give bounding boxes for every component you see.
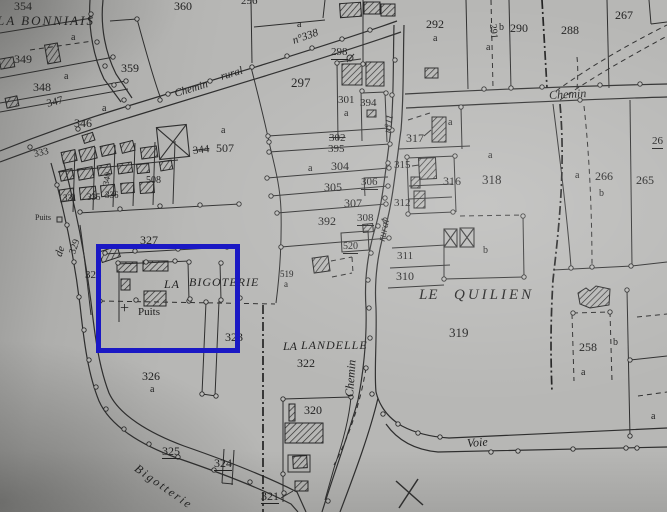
parcel-number: 331 [63, 194, 77, 203]
parcel-number: 322 [297, 357, 315, 369]
parcel-number: 307 [344, 197, 362, 209]
parcel-number: 508 [146, 176, 161, 186]
parcel-number: 288 [561, 24, 579, 36]
subparcel-letter: a [651, 412, 655, 422]
parcel-number: 354 [14, 0, 32, 12]
parcel-number: 347 [46, 95, 65, 110]
subparcel-letter: a [448, 118, 452, 128]
parcel-number: 296 [241, 0, 258, 7]
subparcel-letter: a [64, 72, 68, 82]
parcel-number: 392 [318, 215, 336, 227]
parcel-number: 305 [324, 181, 342, 193]
parcel-number: 290 [510, 22, 528, 34]
parcel-number: 507 [216, 142, 234, 154]
parcel-number: 348 [33, 81, 51, 93]
subparcel-letter: b [599, 189, 604, 199]
road-name: de [54, 245, 68, 258]
parcel-number: 26 [652, 136, 663, 149]
subparcel-letter: a [344, 109, 348, 119]
parcel-number: 301 [338, 95, 355, 106]
parcel-number: 316 [443, 175, 461, 187]
place-name: LA [283, 340, 297, 352]
parcel-number: 333 [33, 147, 50, 160]
road-name: Chemin [343, 359, 358, 397]
road-name: Bigotterie [133, 462, 196, 511]
subparcel-letter: a [575, 171, 579, 181]
parcel-number: 321 [261, 490, 279, 504]
parcel-number: 318 [482, 173, 502, 186]
place-name: LANDELLE [301, 339, 368, 351]
parcel-number: 336 [105, 191, 119, 200]
road-name: Chemin [173, 79, 209, 100]
parcel-number: 520 [343, 242, 358, 254]
parcel-number: 291 [487, 23, 499, 39]
parcel-number: 395 [328, 144, 345, 155]
cadastral-map: 354360LA BONNIAIS296a349a348a347346a3592… [0, 0, 667, 512]
parcel-number: 317 [406, 132, 424, 144]
highlight-rectangle [96, 244, 240, 353]
parcel-number: 320 [304, 404, 322, 416]
parcel-number: 335 [87, 193, 101, 202]
well-label: Puits [35, 214, 51, 222]
subparcel-letter: a [71, 33, 75, 43]
parcel-number: 360 [174, 0, 192, 12]
parcel-number: 265 [636, 174, 654, 186]
parcel-number: 258 [579, 341, 597, 353]
subparcel-letter: b [499, 23, 504, 33]
parcel-number: 326 [142, 370, 160, 382]
parcel-number: 311 [397, 251, 413, 262]
parcel-number: 519 [280, 270, 294, 279]
subparcel-letter: a [433, 34, 437, 44]
parcel-number: 349 [14, 53, 32, 65]
parcel-number: 346 [74, 117, 92, 129]
subparcel-letter: a [221, 126, 225, 136]
parcel-number: 319 [449, 326, 469, 339]
parcel-number: 298 [331, 47, 348, 60]
parcel-number: 308 [357, 213, 374, 226]
road-name: rural [219, 66, 244, 83]
parcel-number: 267 [615, 9, 633, 21]
road-name: Voie [467, 436, 488, 449]
subparcel-letter: a [488, 151, 492, 161]
parcel-number: 310 [396, 270, 414, 282]
parcel-number: 324 [214, 457, 232, 471]
parcel-number: 312 [394, 198, 411, 209]
road-name: rural [377, 218, 392, 242]
parcel-number: 344 [192, 144, 210, 157]
place-name: QUILIEN [454, 288, 534, 303]
place-name: LA BONNIAIS [0, 14, 95, 27]
parcel-number: 297 [291, 76, 311, 89]
subparcel-letter: a [486, 43, 490, 53]
subparcel-letter: a [308, 164, 312, 174]
parcel-number: 292 [426, 18, 444, 30]
subparcel-letter: a [150, 385, 154, 395]
parcel-number: 315 [394, 160, 411, 171]
subparcel-letter: a [297, 20, 301, 30]
subparcel-letter: b [613, 338, 618, 348]
place-name: LE [419, 288, 439, 303]
subparcel-letter: a [102, 104, 106, 114]
subparcel-letter: a [581, 368, 585, 378]
road-name: n°11 [383, 114, 396, 134]
parcel-number: 325 [162, 445, 180, 459]
parcel-number: 359 [121, 62, 139, 74]
parcel-number: 306 [361, 177, 378, 190]
parcel-number: 394 [360, 98, 377, 109]
parcel-number: 340 [102, 171, 113, 186]
parcel-number: 304 [331, 160, 349, 172]
parcel-number: 329 [68, 238, 82, 255]
parcel-number: 266 [595, 170, 613, 182]
subparcel-letter: b [483, 246, 488, 256]
road-name: n°338 [291, 28, 320, 47]
subparcel-letter: a [284, 280, 288, 289]
road-name: Chemin [549, 87, 587, 101]
